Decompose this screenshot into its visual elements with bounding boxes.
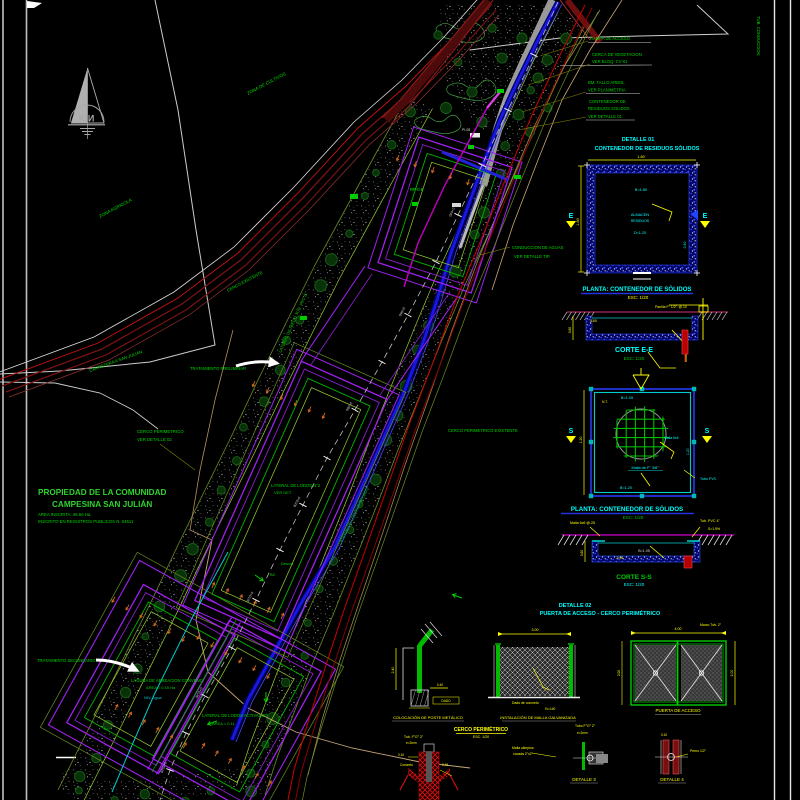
svg-text:S=1.5%: S=1.5% <box>708 527 720 531</box>
svg-text:VER DETALLE 02: VER DETALLE 02 <box>137 437 172 442</box>
svg-text:CERCO PERIMÉTRICO: CERCO PERIMÉTRICO <box>454 725 508 733</box>
svg-text:VER DETALLE TIP.: VER DETALLE TIP. <box>514 254 550 259</box>
svg-text:INSTALACIÓN DE MALLA GALVANIZA: INSTALACIÓN DE MALLA GALVANIZADA <box>500 715 576 720</box>
svg-text:0.60: 0.60 <box>580 550 584 556</box>
svg-text:CERCO PERIMETRICO EXISTENTE: CERCO PERIMETRICO EXISTENTE <box>448 428 518 433</box>
svg-text:PUERTA DE ACCESO - CERCO PERIM: PUERTA DE ACCESO - CERCO PERIMÉTRICO <box>540 609 661 617</box>
svg-text:CONTENEDOR DE: CONTENEDOR DE <box>589 99 626 104</box>
svg-text:RP-0.8: RP-0.8 <box>410 187 424 192</box>
svg-text:DETALLE 01: DETALLE 01 <box>622 137 655 143</box>
svg-text:0.96: 0.96 <box>617 556 624 560</box>
svg-text:S: S <box>569 428 574 435</box>
svg-text:B=1.05: B=1.05 <box>621 396 633 400</box>
svg-text:2.40: 2.40 <box>391 667 395 674</box>
svg-text:Perno 1/2": Perno 1/2" <box>690 749 707 753</box>
svg-text:Marco Tub. 2": Marco Tub. 2" <box>700 623 722 627</box>
svg-text:2.00: 2.00 <box>617 670 621 676</box>
svg-text:VER DET.: VER DET. <box>274 490 292 495</box>
svg-text:CERCO PERIMETRICO: CERCO PERIMETRICO <box>137 429 184 434</box>
svg-text:LAGUNA DE AEREACION CONVENC.: LAGUNA DE AEREACION CONVENC. <box>131 678 204 683</box>
svg-text:AREA INSCRITA: 48.50 Ha.: AREA INSCRITA: 48.50 Ha. <box>38 512 91 517</box>
svg-text:Malla 6x6 @.25: Malla 6x6 @.25 <box>570 521 595 525</box>
svg-text:1.20: 1.20 <box>686 448 690 455</box>
svg-text:Malla olimpica: Malla olimpica <box>512 746 534 750</box>
svg-text:CORTE E-E: CORTE E-E <box>615 347 653 354</box>
svg-text:TRATAMIENTO SECUNDARIO: TRATAMIENTO SECUNDARIO <box>37 658 96 663</box>
svg-text:E: E <box>569 213 574 220</box>
svg-text:e=2mm: e=2mm <box>577 731 588 735</box>
svg-text:LATERAL DE LODOS N°2: LATERAL DE LODOS N°2 <box>271 483 321 488</box>
svg-text:Malla de F° 3/8": Malla de F° 3/8" <box>632 466 660 470</box>
svg-text:VER DETALLE 01: VER DETALLE 01 <box>588 114 623 119</box>
svg-text:ESC. 1/20: ESC. 1/20 <box>473 735 489 739</box>
svg-text:3.00: 3.00 <box>532 628 539 632</box>
svg-text:VER PLANIMETRIA: VER PLANIMETRIA <box>588 88 626 93</box>
svg-text:Concreto: Concreto <box>400 763 413 767</box>
svg-text:AREA = 0.11: AREA = 0.11 <box>212 721 235 726</box>
svg-text:1.80: 1.80 <box>637 155 644 159</box>
svg-text:Tubo F°G° 2": Tubo F°G° 2" <box>575 724 596 728</box>
svg-text:ESC: 1/20: ESC: 1/20 <box>624 582 645 587</box>
svg-text:N.T.: N.T. <box>602 400 608 404</box>
svg-text:E: E <box>703 213 708 220</box>
svg-text:LATERAL DE LODOS ACTIVADOS: LATERAL DE LODOS ACTIVADOS <box>202 713 268 718</box>
svg-text:0.10: 0.10 <box>661 733 667 737</box>
svg-text:B=1.20: B=1.20 <box>620 486 632 490</box>
svg-text:PI-08: PI-08 <box>462 128 470 132</box>
svg-text:B=1.80: B=1.80 <box>635 188 647 192</box>
svg-text:CAMPESINA SAN JULIÁN: CAMPESINA SAN JULIÁN <box>52 499 152 509</box>
svg-text:ALMACEN: ALMACEN <box>631 213 650 217</box>
svg-text:BZ: BZ <box>270 572 276 577</box>
svg-text:cocada 2"x2": cocada 2"x2" <box>513 752 534 756</box>
svg-text:RESIDUOS: RESIDUOS <box>631 219 650 223</box>
svg-text:DETALLE 3: DETALLE 3 <box>572 777 596 782</box>
svg-text:PLANTA: CONTENEDOR DE SÓLIDOS: PLANTA: CONTENEDOR DE SÓLIDOS <box>583 285 692 293</box>
svg-text:RESIDUOS SOLIDOS: RESIDUOS SOLIDOS <box>588 106 630 111</box>
svg-text:ESC: 1/20: ESC: 1/20 <box>623 515 644 520</box>
svg-text:B=1.05: B=1.05 <box>638 549 650 553</box>
svg-text:Parrilla F° 1/2": @.10: Parrilla F° 1/2": @.10 <box>655 305 687 309</box>
svg-text:1.20: 1.20 <box>579 437 583 444</box>
svg-text:Tub. F°G° 2": Tub. F°G° 2" <box>404 735 424 739</box>
svg-text:S: S <box>705 428 710 435</box>
svg-text:0.40: 0.40 <box>437 683 443 687</box>
svg-text:Desvio: Desvio <box>281 561 294 566</box>
svg-text:CONDUCCION DE AGUAS: CONDUCCION DE AGUAS <box>512 245 564 250</box>
svg-text:DETALLE 02: DETALLE 02 <box>559 603 592 609</box>
svg-text:PLANTA: CONTENEDOR DE SÓLID: PLANTA: CONTENEDOR DE SÓLIDOS <box>571 505 683 513</box>
svg-text:PUERTA DE ACCESO: PUERTA DE ACCESO <box>655 708 701 713</box>
svg-text:RAMPA DE ACCESO: RAMPA DE ACCESO <box>590 36 631 41</box>
svg-text:0.45: 0.45 <box>442 763 448 767</box>
svg-text:NIV. Agua: NIV. Agua <box>144 695 162 700</box>
svg-text:ЮИ: ЮИ <box>79 114 95 124</box>
svg-text:CERCA DE VEGETACION: CERCA DE VEGETACION <box>592 52 642 57</box>
svg-text:CORTE S-S: CORTE S-S <box>616 574 652 581</box>
svg-text:PROPIEDAD DE LA COMUNIDAD: PROPIEDAD DE LA COMUNIDAD <box>38 488 167 497</box>
svg-text:0.60: 0.60 <box>568 327 572 333</box>
svg-text:f'c=140: f'c=140 <box>545 707 555 711</box>
svg-text:Malla 6x6: Malla 6x6 <box>664 436 679 440</box>
svg-text:2.00: 2.00 <box>730 670 734 677</box>
svg-text:TUB. CONDUCCION: TUB. CONDUCCION <box>756 16 761 56</box>
svg-text:VER BLOQ. CV-01: VER BLOQ. CV-01 <box>592 59 628 64</box>
svg-text:Dado de concreto: Dado de concreto <box>512 701 539 705</box>
svg-text:TRATAMIENTO PRELIMINAR: TRATAMIENTO PRELIMINAR <box>190 366 246 371</box>
svg-text:INSCRITO EN REGISTROS PUBLICOS: INSCRITO EN REGISTROS PUBLICOS N. 04511 <box>38 519 134 524</box>
svg-text:ESC: 1/20: ESC: 1/20 <box>624 356 645 361</box>
svg-text:0.40: 0.40 <box>683 242 687 249</box>
svg-text:0.10: 0.10 <box>398 753 404 757</box>
svg-text:ESC: 1/20: ESC: 1/20 <box>628 295 649 300</box>
svg-text:AREA = 0.15 Ha: AREA = 0.15 Ha <box>146 685 176 690</box>
svg-text:CONTENEDOR DE RESIDUOS SÓLIDOS: CONTENEDOR DE RESIDUOS SÓLIDOS <box>595 144 700 152</box>
svg-text:e=2mm: e=2mm <box>406 741 417 745</box>
svg-text:Tubo PVC: Tubo PVC <box>700 477 717 481</box>
svg-text:0.60: 0.60 <box>590 319 597 323</box>
svg-text:Tub. PVC 4": Tub. PVC 4" <box>700 519 720 523</box>
svg-text:1.80: 1.80 <box>576 218 580 225</box>
svg-text:COLOCACIÓN DE POSTE METÁLICO: COLOCACIÓN DE POSTE METÁLICO <box>393 715 463 720</box>
svg-text:DETALLE 4: DETALLE 4 <box>660 777 684 782</box>
svg-text:DADO: DADO <box>441 699 451 703</box>
svg-text:4.00: 4.00 <box>675 627 682 631</box>
svg-text:BM. TALLO ARBOL: BM. TALLO ARBOL <box>588 80 625 85</box>
svg-text:D=1.20: D=1.20 <box>634 231 646 235</box>
